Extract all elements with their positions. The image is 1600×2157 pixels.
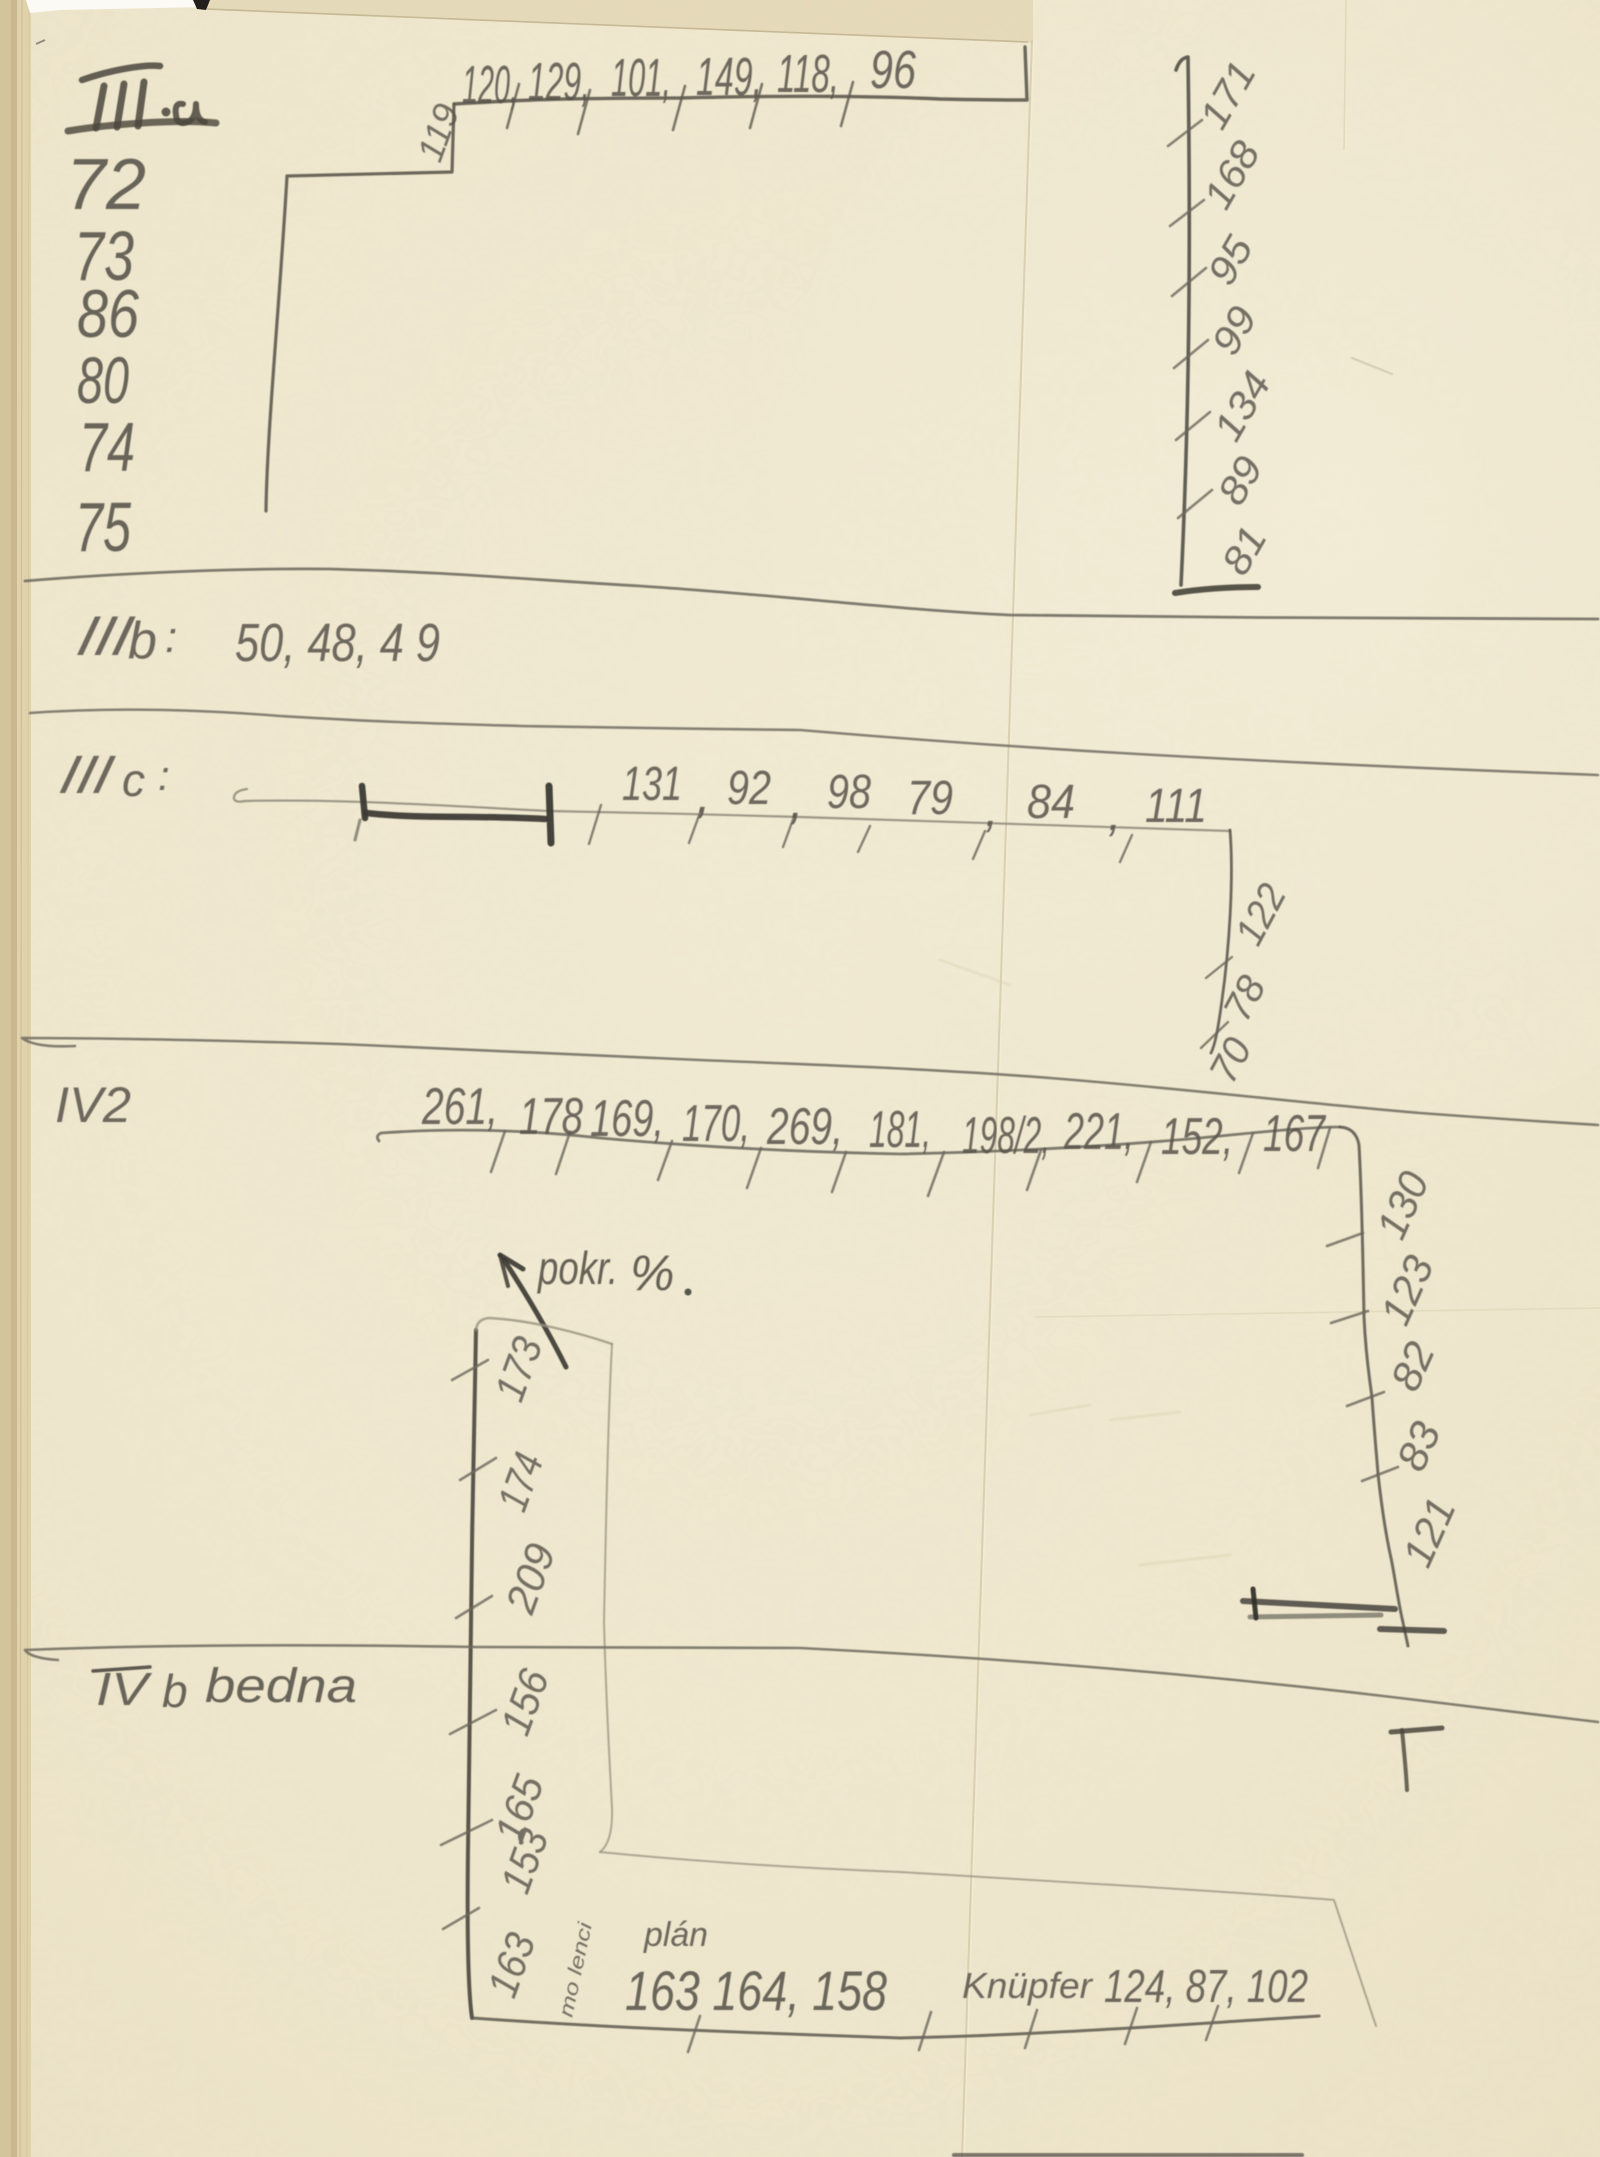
svg-text:86: 86: [77, 276, 139, 352]
svg-text:169,: 169,: [590, 1090, 664, 1148]
svg-text:101,: 101,: [611, 48, 671, 108]
svg-text:98: 98: [827, 766, 871, 819]
svg-text:pokr.: pokr.: [536, 1242, 618, 1294]
svg-text:178: 178: [519, 1088, 583, 1146]
svg-text:131: 131: [622, 758, 682, 811]
svg-text:269,: 269,: [766, 1098, 843, 1156]
svg-text:,: ,: [1108, 788, 1121, 841]
svg-text:129,: 129,: [528, 52, 590, 112]
svg-text:80: 80: [77, 343, 129, 417]
svg-text:c: c: [122, 754, 145, 806]
svg-text:b: b: [162, 1665, 188, 1717]
svg-text:181,: 181,: [869, 1101, 931, 1159]
svg-text:74: 74: [79, 408, 135, 486]
svg-text:221,: 221,: [1063, 1103, 1134, 1161]
svg-text:170,: 170,: [682, 1095, 750, 1153]
svg-text:198/2,: 198/2,: [962, 1107, 1050, 1165]
svg-text:167: 167: [1263, 1105, 1326, 1163]
svg-text:IV2: IV2: [55, 1077, 131, 1133]
svg-text:152,: 152,: [1161, 1108, 1233, 1166]
svg-text:,: ,: [985, 784, 998, 837]
svg-text:163 164, 158: 163 164, 158: [625, 1959, 887, 2022]
svg-text:Knüpfer: Knüpfer: [962, 1965, 1094, 2006]
svg-text:84: 84: [1027, 776, 1075, 829]
svg-text:124, 87, 102: 124, 87, 102: [1104, 1960, 1308, 2012]
svg-text:50, 48, 4 9: 50, 48, 4 9: [235, 613, 440, 673]
svg-text:118,: 118,: [777, 44, 839, 104]
svg-text:79: 79: [907, 772, 953, 825]
svg-text:bedna: bedna: [205, 1660, 357, 1713]
svg-text:,: ,: [790, 776, 803, 829]
svg-text::: :: [165, 613, 177, 662]
svg-text::: :: [158, 752, 170, 799]
svg-text:149,: 149,: [696, 47, 762, 107]
svg-text:261,: 261,: [421, 1078, 498, 1136]
svg-text:%: %: [630, 1245, 674, 1301]
svg-text:111: 111: [1145, 780, 1207, 833]
svg-text:,: ,: [697, 770, 710, 823]
svg-text:120,: 120,: [462, 55, 518, 115]
svg-text:92: 92: [727, 762, 771, 815]
svg-text:b: b: [128, 612, 157, 670]
svg-text:72: 72: [66, 145, 146, 225]
svg-text:75: 75: [75, 488, 132, 566]
svg-text:96: 96: [870, 40, 917, 100]
svg-text:plán: plán: [643, 1916, 708, 1954]
